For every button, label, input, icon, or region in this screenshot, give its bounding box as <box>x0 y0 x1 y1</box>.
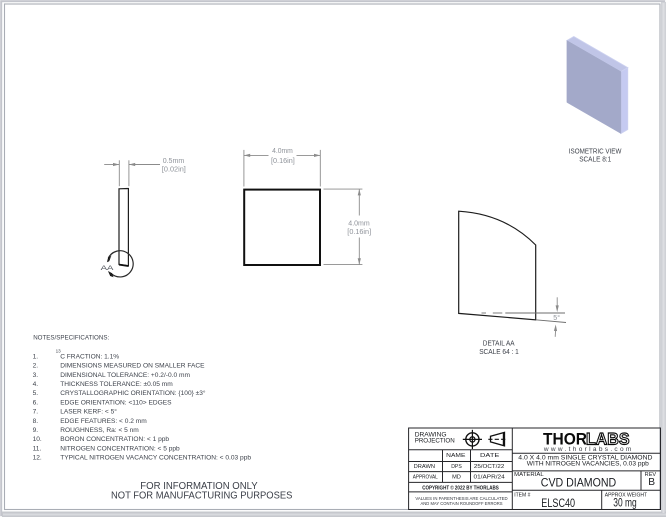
svg-text:10.: 10. <box>33 436 42 443</box>
svg-text:TYPICAL NITROGEN VACANCY CONCE: TYPICAL NITROGEN VACANCY CONCENTRATION: … <box>60 455 251 462</box>
svg-text:9.: 9. <box>33 427 39 434</box>
svg-text:7.: 7. <box>33 409 39 416</box>
svg-text:DPS: DPS <box>451 464 462 470</box>
svg-text:DRAWN: DRAWN <box>414 464 436 470</box>
svg-text:4.0mm: 4.0mm <box>272 146 293 155</box>
svg-text:EDGE ORIENTATION: <110> EDGES: EDGE ORIENTATION: <110> EDGES <box>60 399 172 406</box>
svg-text:DATE: DATE <box>480 453 499 459</box>
svg-text:[0.02in]: [0.02in] <box>162 165 186 174</box>
svg-text:4.: 4. <box>33 381 39 388</box>
svg-text:THICKNESS TOLERANCE: ±0.05 mm: THICKNESS TOLERANCE: ±0.05 mm <box>60 381 173 388</box>
svg-text:NITROGEN CONCENTRATION: < 5 pp: NITROGEN CONCENTRATION: < 5 ppb <box>60 445 180 452</box>
svg-text:MD: MD <box>452 475 461 481</box>
svg-text:5°: 5° <box>553 314 560 322</box>
svg-text:AA: AA <box>101 265 114 272</box>
svg-text:[0.16in]: [0.16in] <box>271 156 295 165</box>
svg-text:PROJECTION: PROJECTION <box>415 438 455 445</box>
svg-text:ROUGHNESS, Ra: < 5 nm: ROUGHNESS, Ra: < 5 nm <box>60 427 139 434</box>
svg-text:[0.16in]: [0.16in] <box>347 227 371 236</box>
svg-text:ELSC40: ELSC40 <box>541 496 575 510</box>
svg-text:25/OCT/22: 25/OCT/22 <box>474 464 504 470</box>
svg-text:AND MAY CONTAIN ROUNDOFF ERROR: AND MAY CONTAIN ROUNDOFF ERRORS <box>421 501 503 507</box>
svg-text:NOT FOR MANUFACTURING PURPOSES: NOT FOR MANUFACTURING PURPOSES <box>111 491 293 502</box>
svg-text:30 mg: 30 mg <box>613 496 636 510</box>
svg-text:EDGE FEATURES: < 0.2 mm: EDGE FEATURES: < 0.2 mm <box>60 418 147 425</box>
svg-text:SCALE 8:1: SCALE 8:1 <box>579 154 611 163</box>
svg-text:8.: 8. <box>33 418 39 425</box>
svg-text:CVD DIAMOND: CVD DIAMOND <box>541 477 616 490</box>
svg-text:NOTES/SPECIFICATIONS:: NOTES/SPECIFICATIONS: <box>33 335 109 342</box>
svg-text:6.: 6. <box>33 399 39 406</box>
svg-text:DIMENSIONS MEASURED ON SMALLER: DIMENSIONS MEASURED ON SMALLER FACE <box>60 363 205 370</box>
svg-text:C FRACTION: 1.1%: C FRACTION: 1.1% <box>60 353 119 360</box>
svg-text:01/APR/24: 01/APR/24 <box>474 475 505 481</box>
svg-text:ITEM #: ITEM # <box>514 493 530 499</box>
svg-text:NAME: NAME <box>446 453 465 459</box>
svg-text:B: B <box>648 477 655 488</box>
svg-text:11.: 11. <box>33 445 42 452</box>
svg-text:12.: 12. <box>33 455 42 462</box>
svg-text:SCALE 64 : 1: SCALE 64 : 1 <box>479 347 519 356</box>
svg-text:2.: 2. <box>33 363 39 370</box>
svg-text:DIMENSIONAL TOLERANCE: +0.2/-0: DIMENSIONAL TOLERANCE: +0.2/-0.0 mm <box>60 372 190 379</box>
svg-text:3.: 3. <box>33 372 39 379</box>
svg-text:CRYSTALLOGRAPHIC ORIENTATION:: CRYSTALLOGRAPHIC ORIENTATION: {100} ±3° <box>60 389 206 397</box>
svg-text:MATERIAL: MATERIAL <box>514 472 544 478</box>
svg-text:BORON CONCENTRATION: < 1 ppb: BORON CONCENTRATION: < 1 ppb <box>60 436 169 443</box>
svg-text:1.: 1. <box>33 353 39 360</box>
svg-text:APPROVAL: APPROVAL <box>413 475 438 481</box>
svg-text:5.: 5. <box>33 390 39 397</box>
svg-text:LASER KERF: < 5°: LASER KERF: < 5° <box>60 408 117 416</box>
svg-text:COPYRIGHT © 2022 BY THORLABS: COPYRIGHT © 2022 BY THORLABS <box>422 484 499 491</box>
svg-text:WITH NITROGEN VACANCIES, 0.03: WITH NITROGEN VACANCIES, 0.03 ppb <box>527 460 649 467</box>
